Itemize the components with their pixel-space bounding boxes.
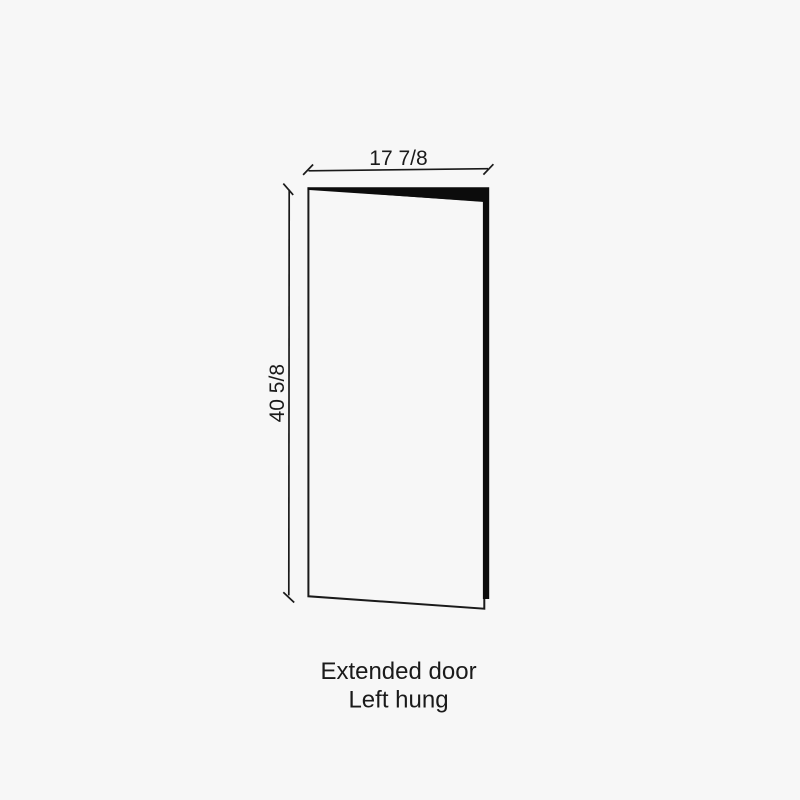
svg-text:40 5/8: 40 5/8 xyxy=(266,364,289,422)
svg-text:Left hung: Left hung xyxy=(348,687,448,714)
svg-text:Extended door: Extended door xyxy=(320,658,476,685)
svg-text:17 7/8: 17 7/8 xyxy=(369,147,427,170)
